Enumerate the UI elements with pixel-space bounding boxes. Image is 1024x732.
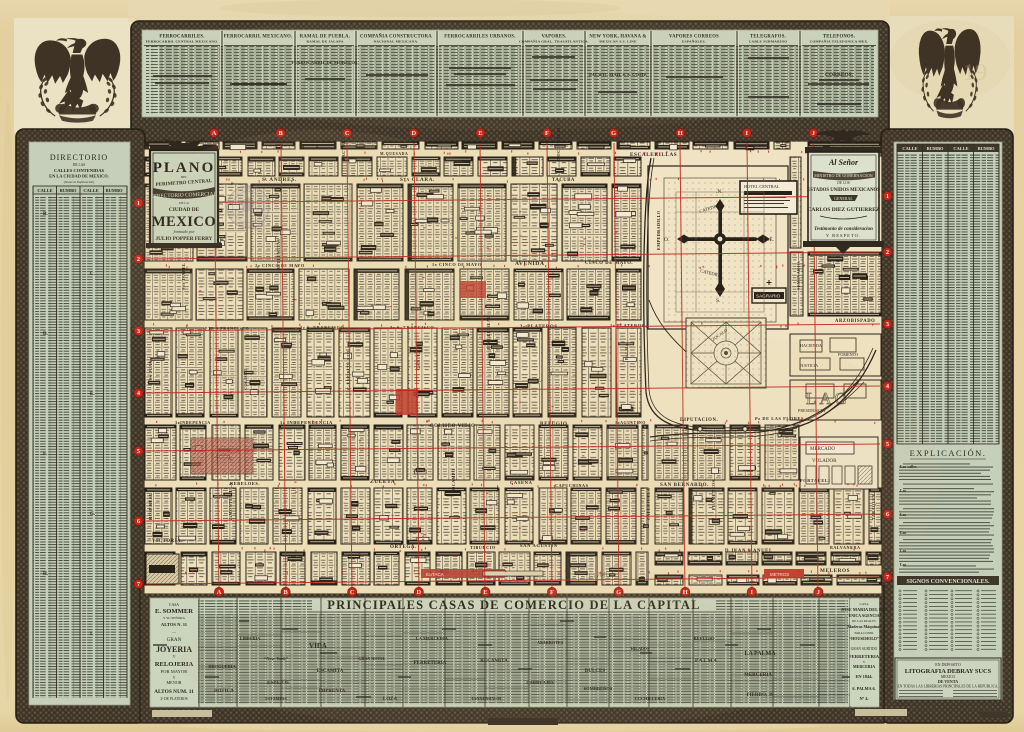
svg-text:MERCERIA: MERCERIA — [853, 664, 875, 669]
svg-text:SIGNOS CONVENCIONALES.: SIGNOS CONVENCIONALES. — [906, 579, 990, 585]
svg-text:HILADOS: HILADOS — [631, 646, 650, 651]
svg-text:Las: Las — [900, 530, 907, 535]
svg-text:MINISTRO DE GOBERNACION: MINISTRO DE GOBERNACION — [814, 173, 872, 178]
svg-text:RUMBO: RUMBO — [106, 188, 123, 193]
svg-text:5: 5 — [137, 448, 140, 455]
svg-text:H.: H. — [43, 572, 49, 577]
svg-text:formado por: formado por — [173, 229, 194, 234]
svg-text:COMPAÑIA TELEFONICA MEX.: COMPAÑIA TELEFONICA MEX. — [810, 39, 869, 44]
svg-text:RECAMITA: RECAMITA — [480, 659, 508, 664]
svg-text:PARA COSER: PARA COSER — [854, 631, 874, 635]
svg-text:GRAN SURTIDO: GRAN SURTIDO — [851, 647, 878, 651]
svg-text:EN DEPOSITO: EN DEPOSITO — [935, 662, 961, 667]
svg-text:D.: D. — [43, 332, 49, 337]
svg-text:Las calles: Las calles — [900, 464, 917, 469]
svg-text:SN JUAN: SN JUAN — [148, 360, 153, 380]
svg-text:MENOR: MENOR — [166, 680, 181, 685]
svg-text:3: 3 — [137, 328, 140, 335]
svg-text:A: A — [212, 130, 217, 137]
svg-text:PORTACELI: PORTACELI — [800, 478, 831, 483]
svg-text:CAPUCHINAS: CAPUCHINAS — [555, 483, 589, 488]
svg-text:E: E — [483, 589, 487, 596]
svg-text:VOLADOR: VOLADOR — [812, 459, 837, 464]
svg-text:CARRUAJES: CARRUAJES — [526, 680, 554, 685]
svg-text:1: 1 — [137, 200, 140, 207]
svg-text:B: B — [283, 589, 288, 596]
svg-text:EN TODAS LAS LIBRERIAS PRINCIP: EN TODAS LAS LIBRERIAS PRINCIPALES DE LA… — [898, 685, 999, 689]
svg-text:CALLE: CALLE — [83, 188, 98, 193]
svg-text:JOSE MARIA DEL RIO: JOSE MARIA DEL RIO — [841, 607, 888, 612]
svg-text:JULIO POPPER FERRY: JULIO POPPER FERRY — [156, 236, 213, 242]
svg-text:CUCHILLERIA: CUCHILLERIA — [635, 696, 665, 701]
svg-text:3: 3 — [886, 321, 889, 328]
svg-text:Las: Las — [900, 548, 907, 553]
svg-text:Po DE LAS FLORES.: Po DE LAS FLORES. — [755, 416, 806, 421]
svg-text:SOMBREROS: SOMBREROS — [584, 686, 613, 691]
svg-text:LA PALMA: LA PALMA — [744, 651, 776, 657]
svg-text:COLISEO: COLISEO — [243, 368, 248, 390]
svg-text:D: D — [411, 130, 416, 137]
svg-text:LITOGRAFIA DEBRAY SUCS: LITOGRAFIA DEBRAY SUCS — [905, 668, 992, 675]
svg-text:1o CINCO DE MAYO: 1o CINCO DE MAYO — [432, 262, 482, 267]
svg-text:OCAMPO: OCAMPO — [451, 468, 456, 490]
svg-text:GRAN: GRAN — [167, 637, 182, 643]
svg-text:EMPEDRADILLO: EMPEDRADILLO — [656, 210, 661, 250]
svg-text:FERROCARRIL CENTRAL MEXICANO.: FERROCARRIL CENTRAL MEXICANO. — [146, 40, 219, 44]
svg-text:2: 2 — [137, 256, 140, 263]
svg-text:GENERAL: GENERAL — [834, 196, 853, 201]
svg-text:1o PLATEROS: 1o PLATEROS — [610, 323, 645, 328]
svg-text:STA ISABEL: STA ISABEL — [181, 263, 186, 290]
svg-text:ALTOS NUM. 11: ALTOS NUM. 11 — [154, 689, 194, 695]
svg-text:CIUDAD DE: CIUDAD DE — [169, 207, 200, 213]
svg-text:RELOJERIA: RELOJERIA — [155, 661, 194, 668]
svg-text:Testimonio de consideracion: Testimonio de consideracion — [814, 227, 873, 232]
svg-text:SAN AGUSTIN: SAN AGUSTIN — [520, 543, 558, 548]
svg-text:Y: Y — [173, 655, 176, 659]
svg-text:MELEROS: MELEROS — [820, 568, 850, 574]
svg-text:HOSP.REAL: HOSP.REAL — [148, 493, 153, 520]
svg-text:.E.: .E. — [768, 237, 775, 243]
svg-text:JOSE EL REAL: JOSE EL REAL — [486, 316, 491, 350]
svg-text:PACIFIC MAIL S. S. COMP.: PACIFIC MAIL S. S. COMP. — [589, 72, 647, 77]
svg-text:O.: O. — [664, 237, 670, 243]
svg-text:POR MAYOR: POR MAYOR — [161, 669, 189, 674]
svg-text:Y SU SEÑORA: Y SU SEÑORA — [163, 615, 185, 620]
svg-text:ESTACA: ESTACA — [426, 572, 444, 577]
svg-text:Al Señor: Al Señor — [828, 158, 859, 167]
svg-text:ZULETA: ZULETA — [370, 479, 395, 485]
svg-text:PALMA: PALMA — [624, 343, 629, 360]
svg-text:CALLE: CALLE — [902, 146, 917, 151]
svg-text:DROGUERIA: DROGUERIA — [208, 664, 236, 669]
svg-text:MEXICAN S.S. LINE: MEXICAN S.S. LINE — [599, 40, 637, 44]
svg-text:AVENIDA: AVENIDA — [515, 261, 545, 267]
svg-text:FOMENTO: FOMENTO — [838, 352, 858, 357]
svg-text:METROS: METROS — [770, 572, 789, 577]
svg-text:FLAMENCOS: FLAMENCOS — [711, 479, 716, 510]
svg-text:XOCOTENCAL: XOCOTENCAL — [556, 126, 561, 160]
svg-text:FERROCARRILES URBANOS.: FERROCARRILES URBANOS. — [444, 35, 515, 40]
svg-text:JOYERIA: JOYERIA — [156, 645, 192, 654]
svg-text:B.: B. — [43, 212, 48, 217]
svg-text:DULCES: DULCES — [585, 669, 606, 674]
svg-text:ESPEJOS: ESPEJOS — [267, 681, 289, 686]
svg-text:FIERRO, 39: FIERRO, 39 — [747, 693, 774, 698]
svg-text:P A L M A: P A L M A — [695, 659, 717, 664]
svg-text:RUMBO: RUMBO — [978, 146, 995, 151]
svg-text:SAGRARIO: SAGRARIO — [756, 294, 781, 299]
svg-text:B: B — [278, 130, 283, 137]
svg-text:Las: Las — [900, 562, 907, 567]
svg-text:COLISEO VIEJO: COLISEO VIEJO — [430, 424, 475, 429]
svg-text:REFUGIO: REFUGIO — [693, 636, 715, 641]
svg-text:ALTOS N. 11: ALTOS N. 11 — [161, 622, 188, 627]
svg-text:D: D — [416, 589, 421, 596]
svg-text:DE LAS: DE LAS — [73, 163, 85, 167]
svg-text:DE LOS: DE LOS — [837, 181, 849, 185]
svg-text:C.: C. — [90, 272, 96, 277]
svg-text:DIPUTACION.: DIPUTACION. — [680, 418, 718, 423]
svg-text:ESTADOS UNIDOS MEXICANOS: ESTADOS UNIDOS MEXICANOS — [807, 188, 880, 193]
svg-text:Y RESPETO.: Y RESPETO. — [826, 233, 861, 238]
svg-text:G.: G. — [90, 512, 96, 517]
svg-text:PLANO: PLANO — [153, 160, 216, 176]
svg-text:“HOUSEHOLD”: “HOUSEHOLD” — [849, 636, 879, 641]
svg-text:SEMINARIO.: SEMINARIO. — [796, 260, 801, 290]
svg-text:FERROCARRIL MEXICANO.: FERROCARRIL MEXICANO. — [224, 35, 293, 40]
svg-text:BOTICA: BOTICA — [214, 689, 234, 694]
svg-text:DE LA: DE LA — [179, 201, 189, 205]
svg-text:DIRECTORIO: DIRECTORIO — [50, 153, 108, 162]
svg-text:DE LAS REALES: DE LAS REALES — [852, 619, 876, 623]
svg-text:FERRETERIA: FERRETERIA — [414, 661, 447, 666]
svg-text:ARZOBISPADO: ARZOBISPADO — [835, 319, 875, 324]
svg-text:DEL: DEL — [181, 175, 188, 179]
svg-text:2aMONTERILLA: 2aMONTERILLA — [228, 482, 233, 520]
svg-text:BETLEMITAS: BETLEMITAS — [276, 238, 281, 270]
svg-text:H: H — [678, 130, 683, 137]
svg-text:S.: S. — [716, 298, 721, 304]
svg-text:1.1708: 1.1708 — [588, 571, 608, 580]
svg-text:UNICA AGENCIA: UNICA AGENCIA — [849, 614, 880, 618]
svg-text:CORREOS.: CORREOS. — [825, 72, 854, 78]
svg-text:Nº 4.: Nº 4. — [859, 696, 868, 701]
svg-text:GRAN HOTEL: GRAN HOTEL — [358, 656, 386, 661]
svg-text:PRINCIPALES CASAS DE COMERCIO: PRINCIPALES CASAS DE COMERCIO DE LA CAPI… — [327, 598, 700, 612]
svg-text:ESCAMITA: ESCAMITA — [317, 669, 344, 674]
svg-text:ESTAMPAS: ESTAMPAS — [265, 696, 287, 701]
svg-text:CoESPIRITU STO.: CoESPIRITU STO. — [346, 349, 351, 390]
svg-text:MERCADO: MERCADO — [810, 447, 835, 452]
svg-text:CABLE SUBMARINO: CABLE SUBMARINO — [749, 40, 787, 44]
svg-text:EN 1844.: EN 1844. — [855, 674, 872, 679]
svg-text:VICTORIA.: VICTORIA. — [152, 539, 183, 544]
svg-text:M.QUESADA: M.QUESADA — [380, 152, 408, 156]
svg-text:EN LA CIUDAD DE MEXICO.: EN LA CIUDAD DE MEXICO. — [49, 174, 109, 179]
svg-text:REFUGIO: REFUGIO — [540, 422, 568, 427]
svg-text:G: G — [616, 589, 621, 596]
svg-text:C: C — [345, 130, 350, 137]
svg-text:TACUBA: TACUBA — [552, 178, 575, 183]
svg-text:CASA: CASA — [169, 603, 179, 607]
svg-text:Las: Las — [900, 512, 907, 517]
svg-text:COMPAÑIA GRAL. TRASATLANTICA.: COMPAÑIA GRAL. TRASATLANTICA. — [519, 39, 589, 44]
svg-text:H: H — [683, 589, 688, 596]
svg-text:CALLES CONTENIDAS: CALLES CONTENIDAS — [54, 168, 105, 173]
svg-text:LIBRERIA: LIBRERIA — [240, 636, 260, 641]
svg-text:Las: Las — [900, 488, 907, 493]
svg-text:1a INDEPENDENCIA: 1a INDEPENDENCIA — [280, 420, 333, 425]
svg-text:“New-York”: “New-York” — [264, 656, 289, 661]
svg-text:MERCERIA: MERCERIA — [744, 673, 772, 678]
svg-text:REBELOES.: REBELOES. — [230, 481, 260, 486]
svg-text:CINCO DE MAYO.: CINCO DE MAYO. — [585, 261, 633, 266]
svg-text:2: 2 — [886, 249, 889, 256]
svg-text:DE VENTA: DE VENTA — [938, 679, 958, 684]
svg-text:C: C — [350, 589, 355, 596]
svg-text:G: G — [611, 130, 616, 137]
svg-text:TABAQUERA: TABAQUERA — [871, 490, 876, 520]
svg-text:LA MERCERIA: LA MERCERIA — [416, 636, 449, 641]
svg-text:(Vease la Explicacion): (Vease la Explicacion) — [64, 180, 95, 184]
svg-text:5: 5 — [886, 441, 889, 448]
svg-text:FERRETERIA: FERRETERIA — [849, 654, 880, 659]
svg-text:HOTEL CENTRAL: HOTEL CENTRAL — [744, 184, 780, 189]
svg-text:CALLEJUELA: CALLEJUELA — [646, 488, 651, 520]
svg-text:TIBURCIO: TIBURCIO — [470, 545, 496, 550]
svg-text:FACTOR: FACTOR — [341, 140, 346, 160]
svg-text:3o S. FRANCISCO: 3o S. FRANCISCO — [390, 325, 434, 330]
svg-text:ESPAÑOLES.: ESPAÑOLES. — [682, 39, 706, 44]
svg-text:TANNENBAUM: TANNENBAUM — [471, 696, 501, 701]
svg-text:LOZA: LOZA — [383, 697, 398, 702]
svg-text:BALVANERA: BALVANERA — [830, 545, 861, 550]
svg-text:Maderas Máquinas: Maderas Máquinas — [847, 624, 881, 629]
svg-text:F: F — [545, 130, 549, 137]
svg-text:CARLOS DIEZ GUTIERREZ: CARLOS DIEZ GUTIERREZ — [807, 207, 879, 213]
svg-text:RUMBO: RUMBO — [60, 188, 77, 193]
svg-text:FERROCARRIL DE MORELOS.: FERROCARRIL DE MORELOS. — [291, 60, 358, 65]
svg-text:NACIONAL MEXICANA.: NACIONAL MEXICANA. — [374, 40, 419, 44]
svg-text:VIDA: VIDA — [309, 642, 327, 650]
svg-text:CALLE: CALLE — [953, 146, 968, 151]
svg-text:ESCALERILLAS: ESCALERILLAS — [630, 152, 677, 158]
svg-text:MEXICO: MEXICO — [152, 214, 216, 230]
svg-text:3aINDEPENCIA: 3aINDEPENCIA — [175, 420, 211, 425]
svg-text:6. PALMA 6.: 6. PALMA 6. — [852, 686, 875, 691]
svg-text:2ª DE PLATEROS: 2ª DE PLATEROS — [160, 697, 187, 701]
svg-text:CALLE: CALLE — [37, 188, 52, 193]
svg-text:CASA: CASA — [859, 602, 869, 606]
svg-text:ABARROTES: ABARROTES — [537, 640, 564, 645]
svg-text:E.: E. — [90, 392, 95, 397]
svg-text:HACIENDA: HACIENDA — [800, 343, 822, 348]
svg-text:RUMBO: RUMBO — [927, 146, 944, 151]
svg-text:IMPRENTA: IMPRENTA — [319, 689, 346, 694]
svg-text:EXPLICACIÓN.: EXPLICACIÓN. — [910, 448, 987, 458]
svg-text:F: F — [550, 589, 554, 596]
svg-text:1: 1 — [886, 193, 889, 200]
svg-text:E: E — [478, 130, 482, 137]
svg-text:A: A — [217, 589, 222, 596]
svg-text:CASENA: CASENA — [510, 480, 533, 485]
svg-text:E. SOMMER: E. SOMMER — [155, 608, 193, 615]
svg-text:19: 19 — [963, 60, 987, 86]
svg-text:RAMAL DE JALAPA: RAMAL DE JALAPA — [307, 40, 344, 44]
